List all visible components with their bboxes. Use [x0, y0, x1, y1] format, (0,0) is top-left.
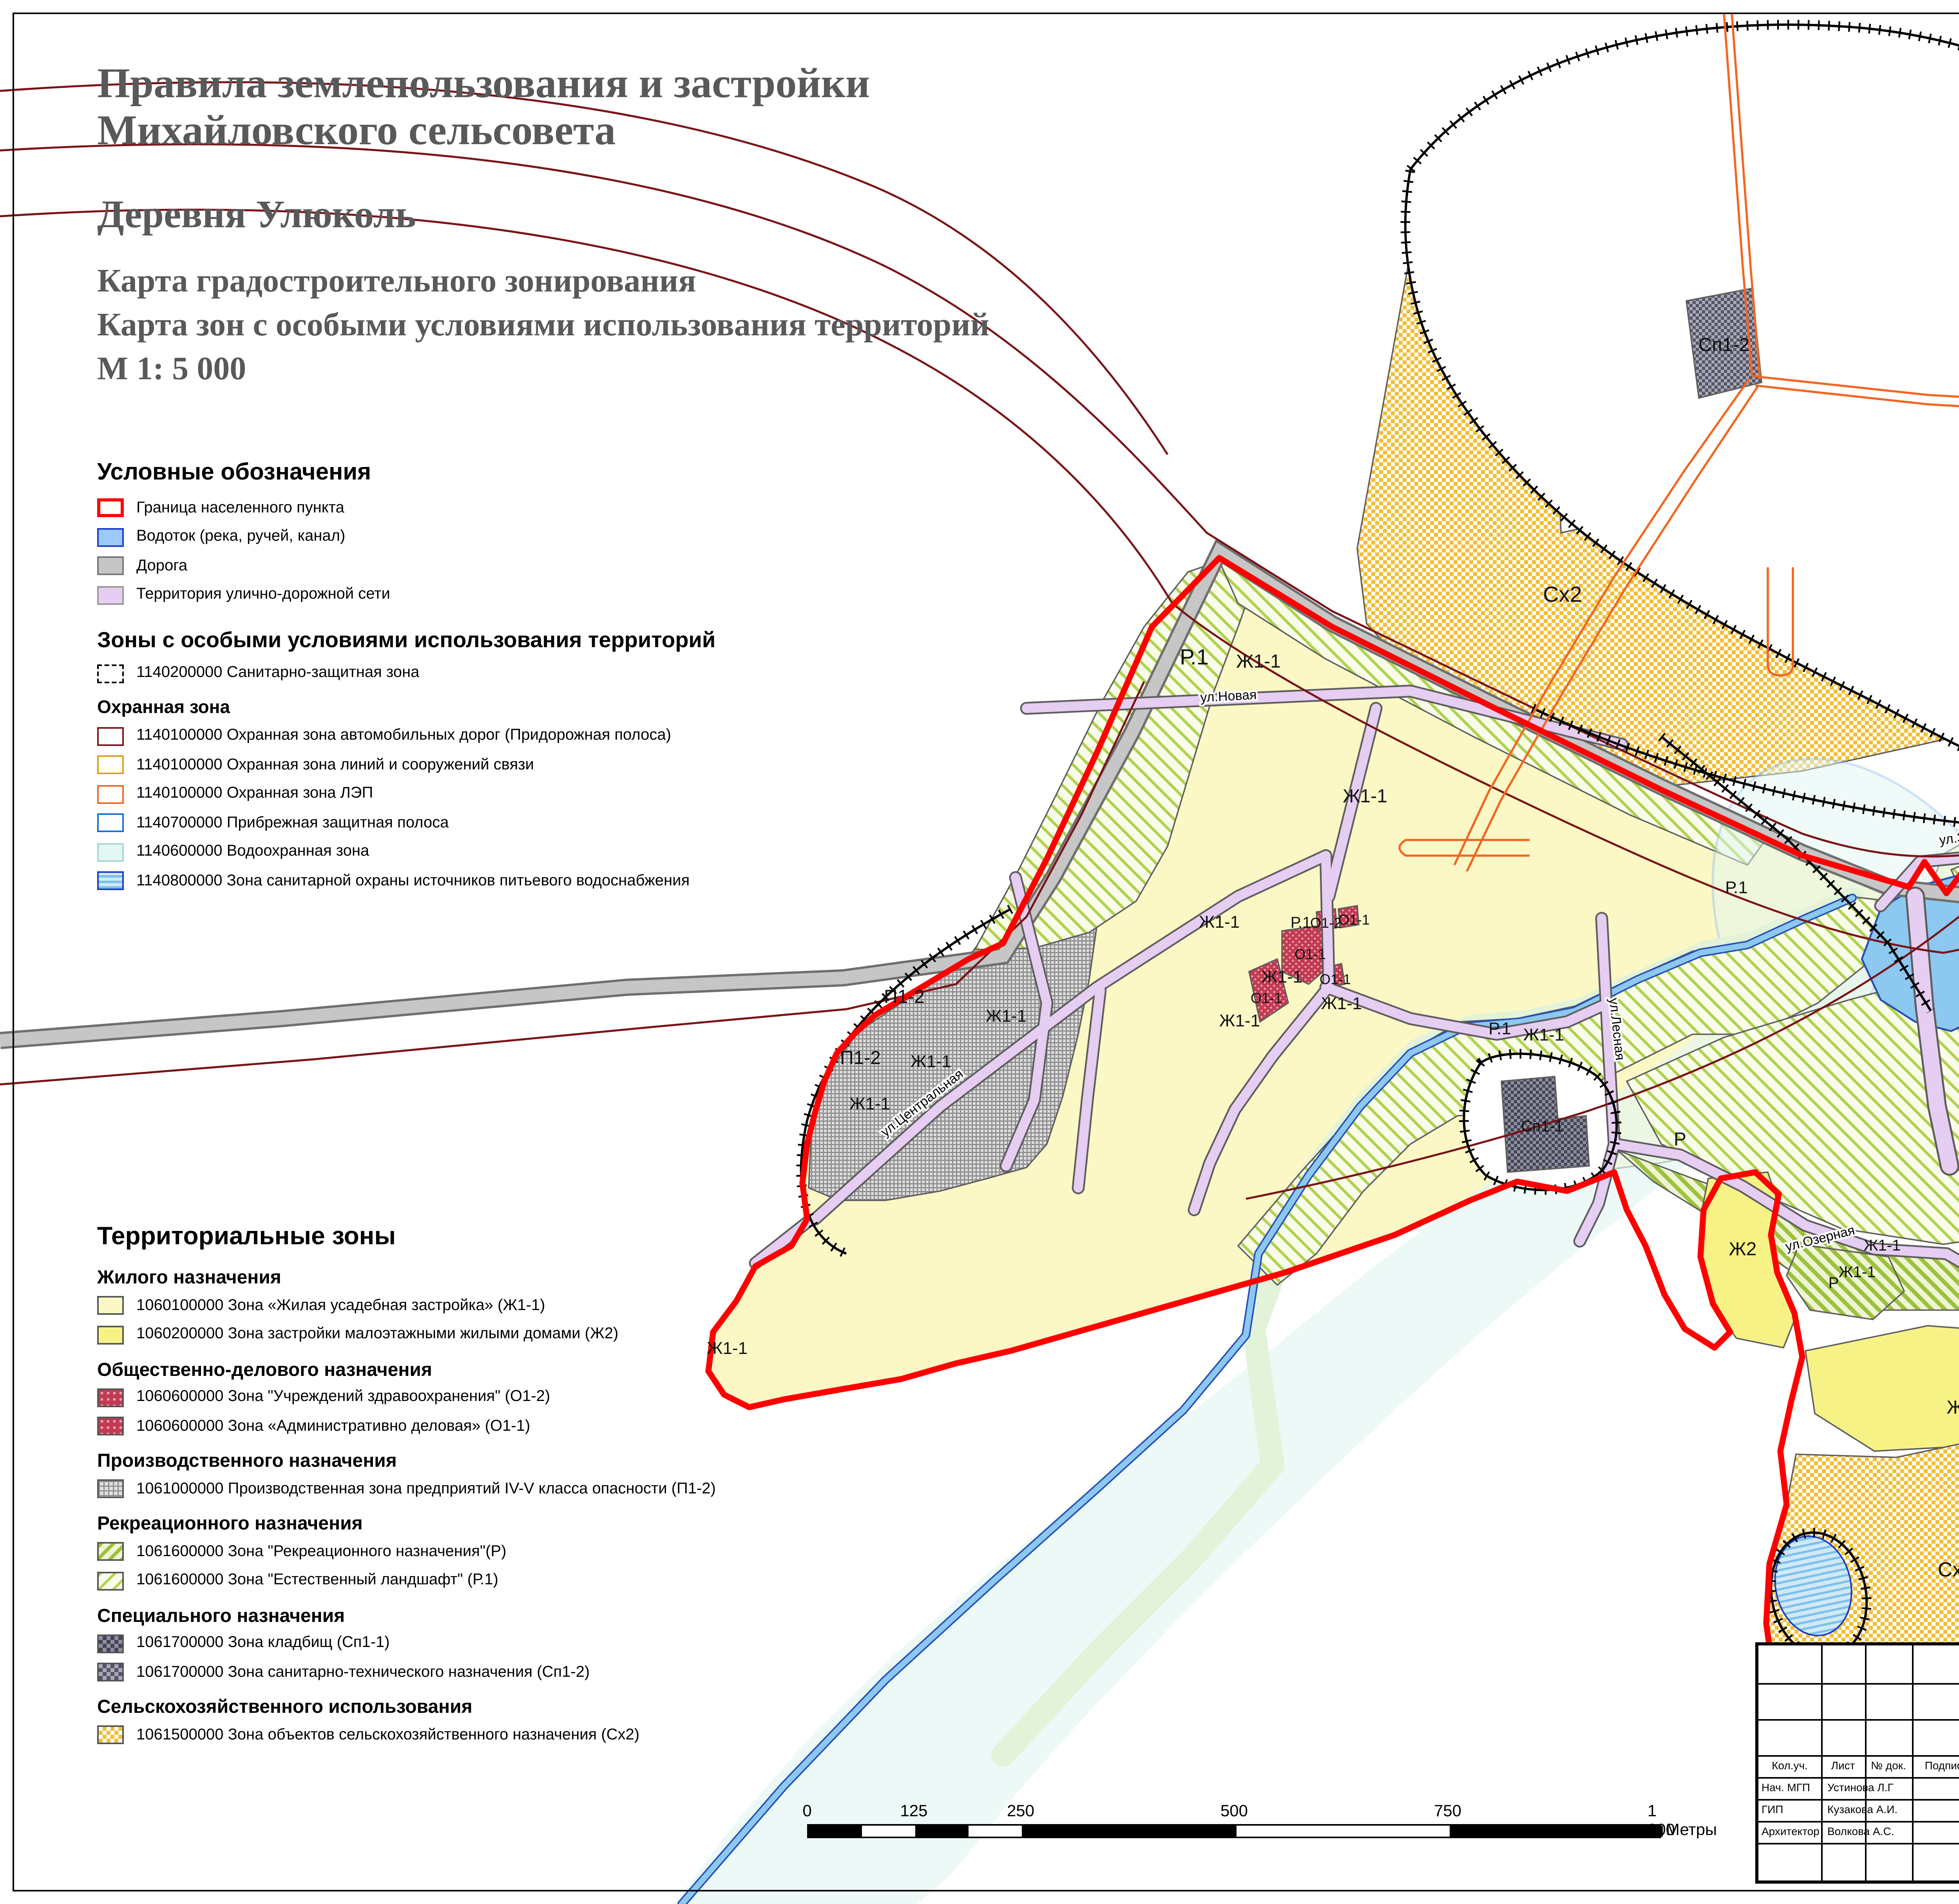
- stamp-signature-row: Нач. МГПУстинова Л.Г: [1758, 1777, 1959, 1799]
- legend-item-label: 1140700000 Прибрежная защитная полоса: [136, 814, 449, 831]
- legend-item: 1140700000 Прибрежная защитная полоса: [97, 813, 834, 832]
- legend-item-label: 1061000000 Производственная зона предпри…: [136, 1480, 716, 1497]
- scale-tick-label: 500: [1220, 1802, 1248, 1821]
- legend-item: 1061500000 Зона объектов сельскохозяйств…: [97, 1725, 834, 1744]
- legend-item-label: Территория улично-дорожной сети: [136, 586, 390, 603]
- zone-label: Ж1-1: [1343, 786, 1387, 807]
- zone-label: Р.1: [1488, 1019, 1511, 1038]
- scale-segment: [969, 1826, 1022, 1837]
- zone-label: П1-2: [840, 1048, 881, 1068]
- zone-label: П1-2: [884, 986, 925, 1007]
- zone-label: Сх2: [1938, 1558, 1959, 1581]
- zh2-swatch: [97, 1325, 124, 1344]
- zone-label: Ж1-1: [986, 1006, 1027, 1026]
- stamp-name: Кузакова А.И.: [1824, 1799, 1918, 1821]
- zone-label: Ж1-1: [1219, 1011, 1260, 1030]
- scale-segment: [1022, 1826, 1236, 1837]
- scale-bar-unit: Метры: [1666, 1821, 1717, 1840]
- stamp-name: Устинова Л.Г: [1824, 1777, 1918, 1799]
- legend-item: 1061700000 Зона кладбищ (Сп1-1): [97, 1634, 834, 1652]
- legend-item-label: 1060100000 Зона «Жилая усадебная застрой…: [136, 1297, 545, 1314]
- water-protect-swatch: [97, 842, 124, 861]
- scale-segment: [809, 1826, 862, 1837]
- legend-item: 1061600000 Зона "Естественный ландшафт" …: [97, 1571, 834, 1590]
- special-zones-items2: 1140100000 Охранная зона автомобильных д…: [97, 726, 834, 890]
- zone-group-title: Рекреационного назначения: [97, 1512, 834, 1534]
- legend-title: Условные обозначения: [97, 459, 834, 486]
- power-protect-swatch: [97, 784, 124, 803]
- scale-tick-label: 0: [802, 1802, 811, 1821]
- sx2-swatch: [97, 1725, 124, 1744]
- zone-group-title: Общественно-делового назначения: [97, 1358, 834, 1380]
- zone-label: Ж1-1: [1199, 912, 1240, 932]
- legend-item: 1061000000 Производственная зона предпри…: [97, 1479, 834, 1498]
- zone-label: Ж1-1: [1839, 1263, 1876, 1281]
- zone-group-title: Жилого назначения: [97, 1266, 834, 1288]
- zone-label: Р: [1829, 1274, 1839, 1292]
- legend-item: 1060600000 Зона «Административно деловая…: [97, 1417, 834, 1435]
- stamp-header-cell: Лист: [1821, 1755, 1865, 1777]
- zone-label: Ж2: [1946, 1397, 1959, 1418]
- stamp-role: Нач. МГП: [1758, 1777, 1824, 1799]
- legend-item: 1140100000 Охранная зона линий и сооруже…: [97, 755, 834, 774]
- zone-group-title: Производственного назначения: [97, 1450, 834, 1471]
- stamp-signature-table: Кол.уч.Лист№ док.ПодписьДата Нач. МГПУст…: [1758, 1645, 1959, 1880]
- legend-item-label: 1140100000 Охранная зона автомобильных д…: [136, 727, 671, 744]
- legend-item: 1060200000 Зона застройки малоэтажными ж…: [97, 1325, 834, 1344]
- water-swatch: [97, 527, 124, 546]
- scale-segment: [916, 1826, 969, 1837]
- zone-group-title: Специального назначения: [97, 1604, 834, 1626]
- legend-item: 1140600000 Водоохранная зона: [97, 842, 834, 861]
- legend-item-label: Граница населенного пункта: [136, 499, 344, 516]
- zone-label: О1-2: [1310, 915, 1342, 931]
- title-line1: Правила землепользования и застройки: [97, 60, 1320, 107]
- legend-item-label: 1140200000 Санитарно-защитная зона: [136, 664, 419, 682]
- sp12-swatch: [97, 1663, 124, 1681]
- boundary-swatch: [97, 498, 124, 517]
- scale-bar-ticks: 01252505007501 000: [807, 1802, 1685, 1823]
- legend-item-label: 1061700000 Зона кладбищ (Сп1-1): [136, 1634, 390, 1652]
- legend-item: Граница населенного пункта: [97, 498, 834, 517]
- stamp-header-cell: Кол.уч.: [1758, 1755, 1821, 1777]
- zone-label: Ж1-1: [1262, 967, 1302, 986]
- stamp-header-cell: № док.: [1865, 1755, 1912, 1777]
- stamp-header-row: Кол.уч.Лист№ док.ПодписьДата: [1758, 1755, 1959, 1777]
- zone-group-title: Сельскохозяйственного использования: [97, 1696, 834, 1718]
- legend-item-label: 1140100000 Охранная зона ЛЭП: [136, 785, 373, 802]
- scale-tick-label: 750: [1434, 1802, 1461, 1821]
- zone-label: Ж1-1: [1321, 994, 1362, 1013]
- scale-bar: 01252505007501 000 Метры: [807, 1802, 1685, 1855]
- zone-label: Р: [1674, 1129, 1686, 1150]
- legend-item-label: 1060200000 Зона застройки малоэтажными ж…: [136, 1326, 618, 1343]
- scale-tick-label: 125: [900, 1802, 927, 1821]
- legend-item: 1140100000 Охранная зона автомобильных д…: [97, 726, 834, 745]
- zone-label: Ж2: [1729, 1239, 1756, 1260]
- zone-label: Сп1-2: [1698, 335, 1749, 355]
- scale-tick-label: 250: [1007, 1802, 1034, 1821]
- special-zones-subtitle: Охранная зона: [97, 698, 834, 717]
- title-scale: М 1: 5 000: [97, 350, 1320, 387]
- stamp-role: Архитектор: [1758, 1821, 1824, 1843]
- stamp-signature-row: ГИПКузакова А.И.: [1758, 1799, 1959, 1821]
- sp11-swatch: [97, 1634, 124, 1652]
- legend-territorial: Территориальные зоны Жилого назначения10…: [97, 1224, 834, 1754]
- legend-item-label: 1060600000 Зона "Учреждений здравоохране…: [136, 1388, 550, 1406]
- zone-label: Ж1-1: [849, 1094, 890, 1113]
- r-swatch: [97, 1542, 124, 1561]
- stamp-header-cell: Подпись: [1912, 1755, 1959, 1777]
- stamp-name: Волкова А.С.: [1824, 1821, 1918, 1843]
- zone-label: О1-1: [1320, 971, 1351, 987]
- p12-swatch: [97, 1479, 124, 1498]
- legend-item: 1061600000 Зона "Рекреационного назначен…: [97, 1542, 834, 1561]
- street-swatch: [97, 585, 124, 604]
- road-swatch: [97, 556, 124, 575]
- sanitary-swatch: [97, 664, 124, 682]
- legend-item: 1061700000 Зона санитарно-технического н…: [97, 1663, 834, 1681]
- stamp-role: ГИП: [1758, 1799, 1824, 1821]
- drink-protect-swatch: [97, 871, 124, 890]
- title-line3: Деревня Улюколь: [97, 195, 1320, 239]
- stamp-signature-row: АрхитекторВолкова А.С.: [1758, 1821, 1959, 1843]
- legend-item: Дорога: [97, 556, 834, 575]
- legend-symbols: Условные обозначения Граница населенного…: [97, 459, 834, 900]
- title-line2: Михайловского сельсовета: [97, 107, 1320, 154]
- zone-label: Ж1-1: [1864, 1237, 1901, 1254]
- zone-label: О1-1: [1338, 912, 1370, 928]
- title-stamp: Кол.уч.Лист№ док.ПодписьДата Нач. МГПУст…: [1755, 1642, 1959, 1884]
- r1-swatch: [97, 1571, 124, 1590]
- zone-label: Сх2: [1543, 582, 1582, 606]
- legend-item-label: Дорога: [136, 557, 187, 574]
- legend-item-label: 1140100000 Охранная зона линий и сооруже…: [136, 756, 534, 773]
- legend-item: 1060100000 Зона «Жилая усадебная застрой…: [97, 1296, 834, 1315]
- shore-protect-swatch: [97, 813, 124, 832]
- road-protect-swatch: [97, 726, 124, 745]
- zone-label: О1-1: [1251, 990, 1282, 1006]
- title-line4: Карта градостроительного зонирования: [97, 264, 1320, 301]
- scale-segment: [1449, 1826, 1663, 1837]
- special-zones-items1: 1140200000 Санитарно-защитная зона: [97, 664, 834, 682]
- legend-items: Граница населенного пунктаВодоток (река,…: [97, 498, 834, 604]
- scale-segment: [1236, 1826, 1449, 1837]
- stamp-rows: Нач. МГПУстинова Л.ГГИПКузакова А.И.Архи…: [1758, 1777, 1959, 1843]
- zone-zh2-south: [1805, 1326, 1959, 1451]
- legend-item-label: 1060600000 Зона «Административно деловая…: [136, 1417, 530, 1435]
- legend-item-label: 1140800000 Зона санитарной охраны источн…: [136, 872, 690, 889]
- zone-label: О1-1: [1295, 946, 1326, 962]
- legend-item-label: 1140600000 Водоохранная зона: [136, 843, 369, 860]
- legend-item: 1140200000 Санитарно-защитная зона: [97, 664, 834, 682]
- legend-item: Территория улично-дорожной сети: [97, 585, 834, 604]
- scale-segment: [862, 1826, 915, 1837]
- zone-label: Сп1-1: [1521, 1118, 1563, 1135]
- legend-item: 1140100000 Охранная зона ЛЭП: [97, 784, 834, 803]
- legend-item-label: 1061700000 Зона санитарно-технического н…: [136, 1663, 590, 1681]
- street-label: ул.Новая: [1200, 687, 1257, 705]
- o12-swatch: [97, 1388, 124, 1406]
- territorial-zone-groups: Жилого назначения1060100000 Зона «Жилая …: [97, 1266, 834, 1744]
- zone-label: Ж1-1: [1523, 1025, 1564, 1044]
- legend-item: Водоток (река, ручей, канал): [97, 527, 834, 546]
- legend-item-label: 1061500000 Зона объектов сельскохозяйств…: [136, 1726, 639, 1743]
- territorial-zones-title: Территориальные зоны: [97, 1224, 834, 1252]
- map-sheet: Сп1-2Сх2Р.1Ж1-1Ж1-1Ж1-1Ж1-1Ж1-1Ж1-1Ж1-1Ж…: [0, 0, 1959, 1904]
- title-line5: Карта зон с особыми условиями использова…: [97, 307, 1320, 344]
- legend-item-label: Водоток (река, ручей, канал): [136, 528, 345, 545]
- o11-swatch: [97, 1417, 124, 1435]
- legend-item: 1140800000 Зона санитарной охраны источн…: [97, 871, 834, 890]
- legend-item: 1060600000 Зона "Учреждений здравоохране…: [97, 1388, 834, 1406]
- comm-protect-swatch: [97, 755, 124, 774]
- scale-bar-bar: [807, 1824, 1661, 1838]
- legend-item-label: 1061600000 Зона "Рекреационного назначен…: [136, 1543, 506, 1560]
- zone-label: Р.1: [1725, 878, 1748, 897]
- zone-label: Р.1: [1291, 914, 1311, 931]
- title-block: Правила землепользования и застройки Мих…: [97, 60, 1320, 387]
- zh11-swatch: [97, 1296, 124, 1315]
- legend-item-label: 1061600000 Зона "Естественный ландшафт" …: [136, 1572, 498, 1589]
- zone-label: Р.1: [1180, 644, 1208, 669]
- special-zones-title: Зоны с особыми условиями использования т…: [97, 626, 834, 651]
- zone-label: Ж1-1: [1236, 651, 1281, 672]
- zone-label: Ж1-1: [911, 1052, 951, 1071]
